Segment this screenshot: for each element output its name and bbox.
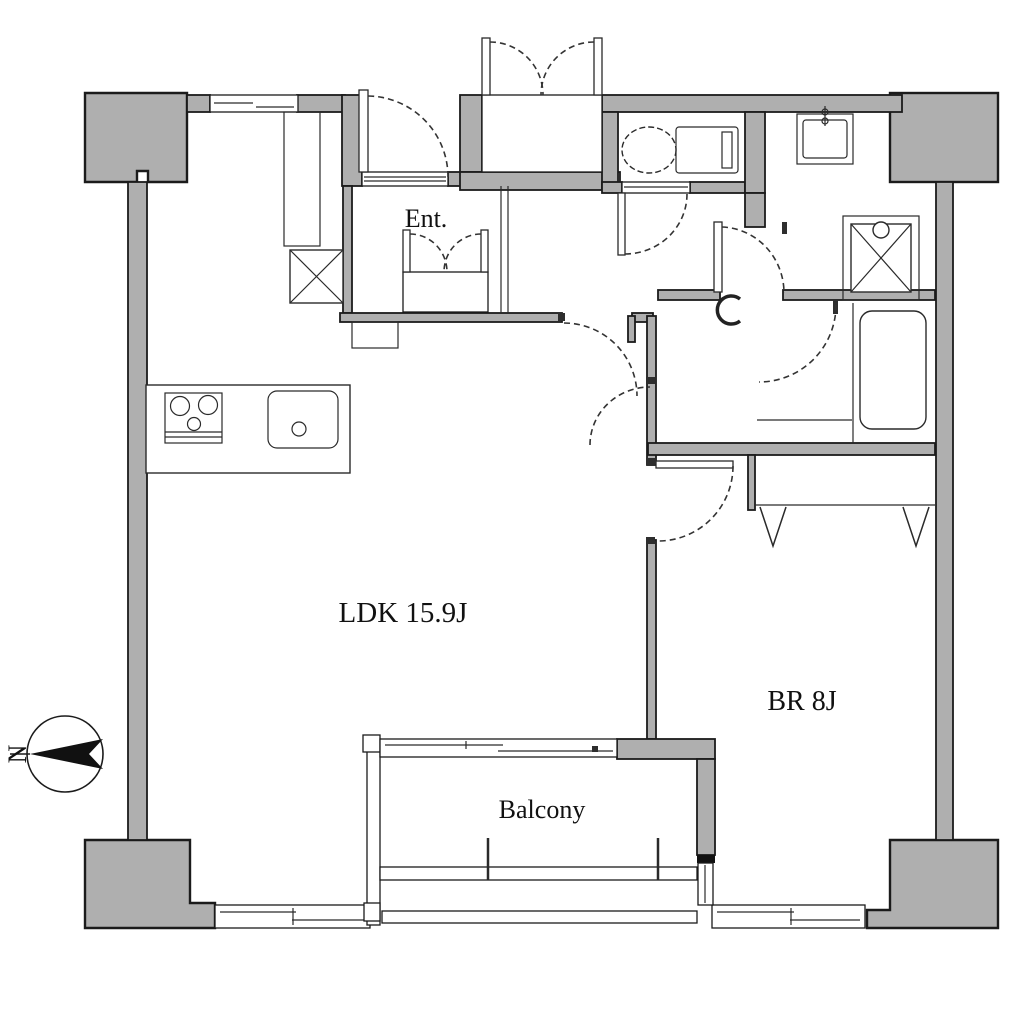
wall-balcony-corner-h [617, 739, 715, 759]
balcony-label: Balcony [499, 795, 586, 824]
pier-top-left [85, 93, 187, 182]
wall-right [936, 182, 953, 840]
wall-top-b [297, 95, 345, 112]
meter-box-icon [482, 38, 602, 172]
washbasin-icon [797, 106, 853, 164]
wall-left [128, 182, 147, 840]
duct-icon [284, 112, 320, 246]
wall-balcony-corner-cap [697, 855, 715, 863]
compass-north-label: N [3, 744, 32, 763]
wall-hall-ldk-west [340, 313, 562, 322]
balcony-corner-bottom [364, 903, 380, 921]
wall-divider-lower [647, 540, 656, 739]
wall-toilet-washroom [745, 112, 765, 193]
wall-toilet-washroom-stub [745, 193, 765, 227]
wall-top-a [187, 95, 210, 112]
washing-machine-icon [843, 216, 919, 300]
balcony-side-window [698, 863, 713, 905]
washroom-door [714, 222, 787, 293]
wall-door-jamb [628, 316, 635, 342]
compass: N [3, 716, 103, 792]
balcony-left-wall [367, 739, 380, 925]
door-swing-icon [367, 96, 448, 177]
pier-top-right [890, 93, 998, 182]
doors [359, 38, 838, 541]
bathroom-door [759, 300, 838, 382]
wall-entry-vertical [460, 95, 482, 172]
wall-closet-left [748, 455, 755, 510]
wall-alcove-right [602, 112, 618, 190]
floor-plan: N Ent. LDK 15.9J BR 8J Balcony [0, 0, 1024, 1024]
wall-balcony-corner-v [697, 759, 715, 855]
ldk-south-window [215, 905, 370, 928]
wall-br-top [648, 443, 935, 455]
toilet-door [618, 193, 687, 255]
entrance-door-sill [362, 172, 448, 186]
entrance-label: Ent. [405, 204, 448, 233]
bedroom-label: BR 8J [767, 686, 836, 717]
closet-hanger-icon [755, 505, 935, 546]
entrance-door [359, 90, 448, 177]
pier-bottom-left [85, 840, 215, 928]
ldk-label: LDK 15.9J [339, 597, 468, 629]
shoe-closet-icon [403, 230, 488, 312]
balcony-inner-rail [380, 838, 697, 880]
kitchen-cabinet [352, 322, 398, 348]
pipe-shaft-icon [290, 250, 343, 303]
bedroom-door [656, 461, 733, 541]
wall-toilet-bottom-east [690, 182, 745, 193]
sliding-window-icon [210, 95, 298, 112]
kitchen-counter [146, 385, 350, 473]
entrance-step-line [501, 186, 508, 313]
balcony-outer-rail [382, 911, 697, 923]
ldk-door [564, 323, 650, 445]
br-south-window [712, 905, 865, 928]
pier-bottom-right [867, 840, 998, 928]
wall-under-alcove [460, 172, 620, 190]
hand-sink-icon [717, 296, 740, 324]
balcony-structure [363, 735, 697, 925]
balcony-sliding-door [380, 739, 617, 757]
wall-top-d [602, 95, 902, 112]
wall-junction-dots [558, 313, 655, 544]
wall-washroom-bottom-west [658, 290, 720, 300]
toilet-door-sill [622, 182, 690, 193]
bathtub-icon [757, 303, 926, 443]
wall-toilet-bottom-west [602, 182, 622, 193]
toilet-icon [622, 127, 738, 173]
balcony-corner-top [363, 735, 380, 752]
wall-ent-left [343, 186, 352, 313]
